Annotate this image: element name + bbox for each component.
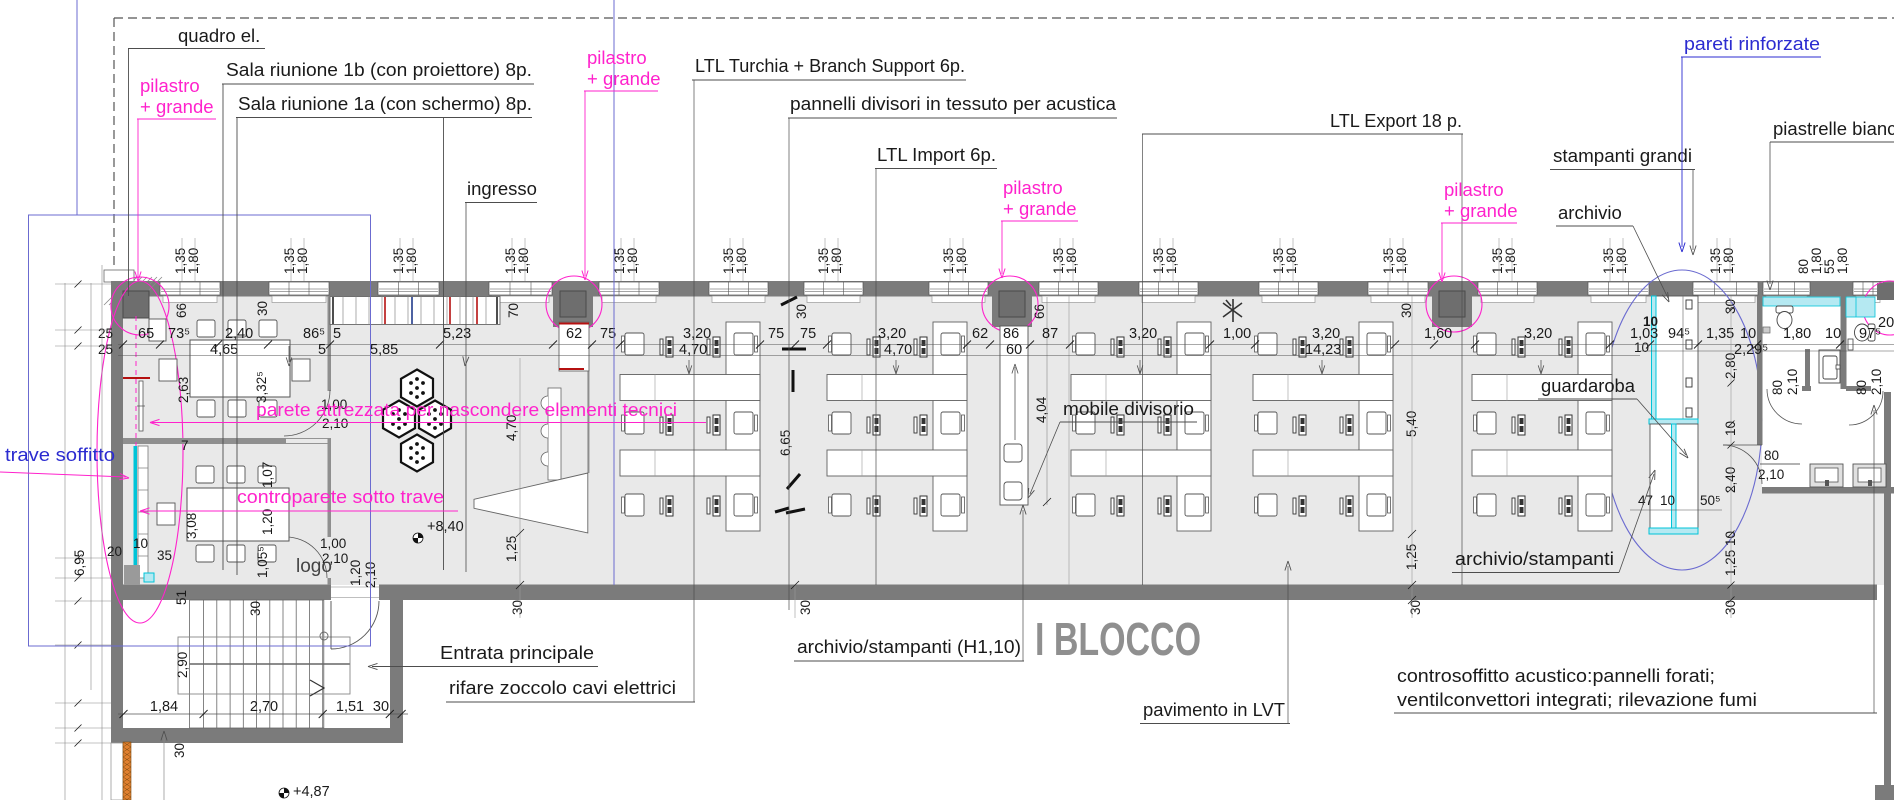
svg-text:30: 30 [255, 301, 270, 316]
svg-text:I BLOCCO: I BLOCCO [1035, 613, 1201, 665]
svg-text:7: 7 [181, 438, 189, 453]
svg-text:4,70: 4,70 [884, 342, 912, 358]
svg-text:1,25: 1,25 [1723, 550, 1738, 576]
svg-text:2,80: 2,80 [1723, 353, 1738, 379]
svg-text:1,80: 1,80 [1164, 248, 1179, 274]
svg-text:2,70: 2,70 [250, 699, 278, 715]
svg-text:1,07: 1,07 [260, 462, 275, 488]
svg-text:1,84: 1,84 [150, 699, 178, 715]
svg-text:5: 5 [318, 342, 326, 358]
svg-text:25: 25 [98, 342, 113, 357]
svg-text:1,25: 1,25 [1404, 544, 1419, 570]
svg-text:86: 86 [1003, 326, 1019, 342]
svg-text:5: 5 [333, 326, 341, 342]
svg-text:Sala riunione 1b (con proietto: Sala riunione 1b (con proiettore) 8p. [226, 59, 532, 80]
svg-text:10: 10 [1825, 326, 1841, 342]
svg-text:2,40: 2,40 [225, 326, 253, 342]
svg-text:pannelli divisori in tessuto p: pannelli divisori in tessuto per acustic… [790, 93, 1117, 114]
svg-text:35: 35 [157, 548, 172, 563]
svg-text:2,29⁵: 2,29⁵ [1734, 342, 1768, 358]
svg-text:pilastro: pilastro [1003, 177, 1063, 198]
svg-text:75: 75 [768, 326, 784, 342]
svg-text:1,80: 1,80 [954, 248, 969, 274]
svg-text:1,80: 1,80 [516, 248, 531, 274]
svg-text:30: 30 [248, 601, 263, 616]
svg-text:+ grande: + grande [140, 96, 214, 117]
svg-text:guardaroba: guardaroba [1541, 375, 1636, 396]
svg-text:ventilconvettori integrati; ri: ventilconvettori integrati; rilevazione … [1397, 689, 1757, 710]
svg-text:1,80: 1,80 [1835, 248, 1850, 274]
svg-text:3,20: 3,20 [683, 326, 711, 342]
svg-text:quadro el.: quadro el. [178, 25, 260, 46]
svg-text:2,63: 2,63 [176, 377, 191, 403]
svg-text:80: 80 [1854, 380, 1869, 395]
svg-text:60: 60 [1006, 342, 1022, 358]
svg-text:30: 30 [794, 304, 809, 319]
svg-text:70: 70 [506, 303, 521, 318]
svg-text:Sala riunione 1a (con schermo): Sala riunione 1a (con schermo) 8p. [238, 93, 532, 114]
svg-text:4,65: 4,65 [210, 342, 238, 358]
svg-text:94⁵: 94⁵ [1668, 326, 1690, 342]
svg-text:1,25: 1,25 [504, 536, 519, 562]
svg-text:6,95: 6,95 [72, 550, 87, 576]
svg-text:1,80: 1,80 [1614, 248, 1629, 274]
svg-text:75: 75 [800, 326, 816, 342]
svg-text:LTL Import 6p.: LTL Import 6p. [877, 144, 996, 165]
svg-text:5,40: 5,40 [1404, 411, 1419, 437]
svg-text:pavimento in LVT: pavimento in LVT [1143, 699, 1285, 720]
svg-text:1,00: 1,00 [320, 536, 346, 551]
svg-text:3,08: 3,08 [184, 513, 199, 539]
svg-text:20: 20 [1878, 315, 1894, 331]
svg-text:62: 62 [972, 326, 988, 342]
svg-text:87: 87 [1042, 326, 1058, 342]
svg-text:10: 10 [133, 536, 148, 551]
svg-text:stampanti grandi: stampanti grandi [1553, 145, 1692, 166]
svg-text:rifare zoccolo cavi elettrici: rifare zoccolo cavi elettrici [449, 677, 676, 698]
svg-text:1,60: 1,60 [1424, 326, 1452, 342]
svg-text:1,20: 1,20 [348, 560, 363, 586]
svg-text:66: 66 [174, 303, 189, 318]
svg-text:LTL Turchia + Branch Support 6: LTL Turchia + Branch Support 6p. [695, 55, 965, 76]
svg-text:+ grande: + grande [1003, 198, 1077, 219]
svg-text:controparete sotto trave: controparete sotto trave [237, 486, 444, 507]
svg-text:1,80: 1,80 [1503, 248, 1518, 274]
svg-text:20: 20 [107, 544, 122, 559]
svg-text:trave soffitto: trave soffitto [5, 444, 115, 465]
svg-text:archivio/stampanti (H1,10): archivio/stampanti (H1,10) [797, 636, 1021, 657]
svg-text:pilastro: pilastro [140, 75, 200, 96]
svg-text:+4,87: +4,87 [293, 784, 330, 800]
svg-text:1,80: 1,80 [734, 248, 749, 274]
svg-text:1,80: 1,80 [625, 248, 640, 274]
svg-text:pilastro: pilastro [587, 47, 647, 68]
svg-text:4,70: 4,70 [679, 342, 707, 358]
svg-text:30: 30 [1723, 600, 1738, 615]
svg-text:archivio/stampanti: archivio/stampanti [1455, 548, 1614, 569]
svg-text:6,65: 6,65 [778, 430, 793, 456]
svg-text:2,10: 2,10 [1758, 467, 1784, 482]
svg-text:ingresso: ingresso [467, 178, 537, 199]
svg-text:1,05⁵: 1,05⁵ [255, 546, 270, 578]
svg-text:pareti rinforzate: pareti rinforzate [1684, 33, 1820, 54]
svg-text:62: 62 [566, 326, 582, 342]
svg-text:mobile divisorio: mobile divisorio [1063, 398, 1194, 419]
svg-text:1,20: 1,20 [260, 509, 275, 535]
svg-text:1,80: 1,80 [1721, 248, 1736, 274]
svg-text:LTL Export 18 p.: LTL Export 18 p. [1330, 110, 1462, 131]
svg-text:30: 30 [172, 743, 187, 758]
svg-text:2,10: 2,10 [1869, 369, 1884, 395]
svg-text:4,04: 4,04 [1034, 396, 1049, 423]
svg-text:14,23: 14,23 [1305, 342, 1341, 358]
svg-text:30: 30 [510, 600, 525, 615]
svg-text:30: 30 [373, 699, 389, 715]
svg-text:1,51: 1,51 [336, 699, 364, 715]
svg-text:10: 10 [1723, 531, 1738, 546]
svg-text:controsoffitto acustico:pannel: controsoffitto acustico:pannelli forati; [1397, 665, 1715, 686]
svg-text:1,80: 1,80 [1394, 248, 1409, 274]
svg-text:73⁵: 73⁵ [168, 326, 190, 342]
svg-text:piastrelle bianche: piastrelle bianche [1773, 118, 1894, 139]
svg-text:51: 51 [174, 590, 189, 605]
svg-text:+ grande: + grande [587, 68, 661, 89]
svg-text:80: 80 [1770, 380, 1785, 395]
svg-text:10: 10 [1660, 493, 1675, 508]
svg-text:5,85: 5,85 [370, 342, 398, 358]
svg-text:1,03: 1,03 [1630, 326, 1658, 342]
svg-text:30: 30 [1723, 299, 1738, 314]
svg-text:1,80: 1,80 [404, 248, 419, 274]
svg-text:3,20: 3,20 [1312, 326, 1340, 342]
svg-text:1,80: 1,80 [829, 248, 844, 274]
svg-text:10: 10 [1723, 421, 1738, 436]
svg-text:1,80: 1,80 [1064, 248, 1079, 274]
svg-text:3,20: 3,20 [878, 326, 906, 342]
svg-text:pilastro: pilastro [1444, 179, 1504, 200]
svg-text:1,80: 1,80 [1284, 248, 1299, 274]
svg-text:5,23: 5,23 [443, 326, 471, 342]
svg-text:65: 65 [138, 326, 154, 342]
svg-text:47: 47 [1638, 493, 1653, 508]
svg-text:archivio: archivio [1558, 202, 1622, 223]
svg-text:Entrata principale: Entrata principale [440, 642, 594, 663]
svg-text:parete attrezzata per nasconde: parete attrezzata per nascondere element… [256, 399, 677, 420]
svg-text:2,90: 2,90 [175, 652, 190, 678]
svg-text:25: 25 [98, 326, 113, 341]
svg-text:3,20: 3,20 [1524, 326, 1552, 342]
svg-text:1,80: 1,80 [295, 248, 310, 274]
svg-text:50⁵: 50⁵ [1700, 493, 1721, 508]
svg-text:1,80: 1,80 [186, 248, 201, 274]
svg-text:1,80: 1,80 [1783, 326, 1811, 342]
svg-text:+ grande: + grande [1444, 200, 1518, 221]
svg-text:86⁵: 86⁵ [303, 326, 325, 342]
svg-text:1,00: 1,00 [1223, 326, 1251, 342]
svg-text:2,10: 2,10 [1785, 369, 1800, 395]
svg-text:80: 80 [1764, 448, 1779, 463]
svg-text:66: 66 [1032, 304, 1047, 319]
svg-text:1,35: 1,35 [1706, 326, 1734, 342]
svg-text:logo: logo [296, 556, 332, 577]
svg-text:3,20: 3,20 [1129, 326, 1157, 342]
svg-text:+8,40: +8,40 [427, 519, 464, 535]
svg-text:10: 10 [1740, 326, 1756, 342]
svg-text:30: 30 [798, 600, 813, 615]
